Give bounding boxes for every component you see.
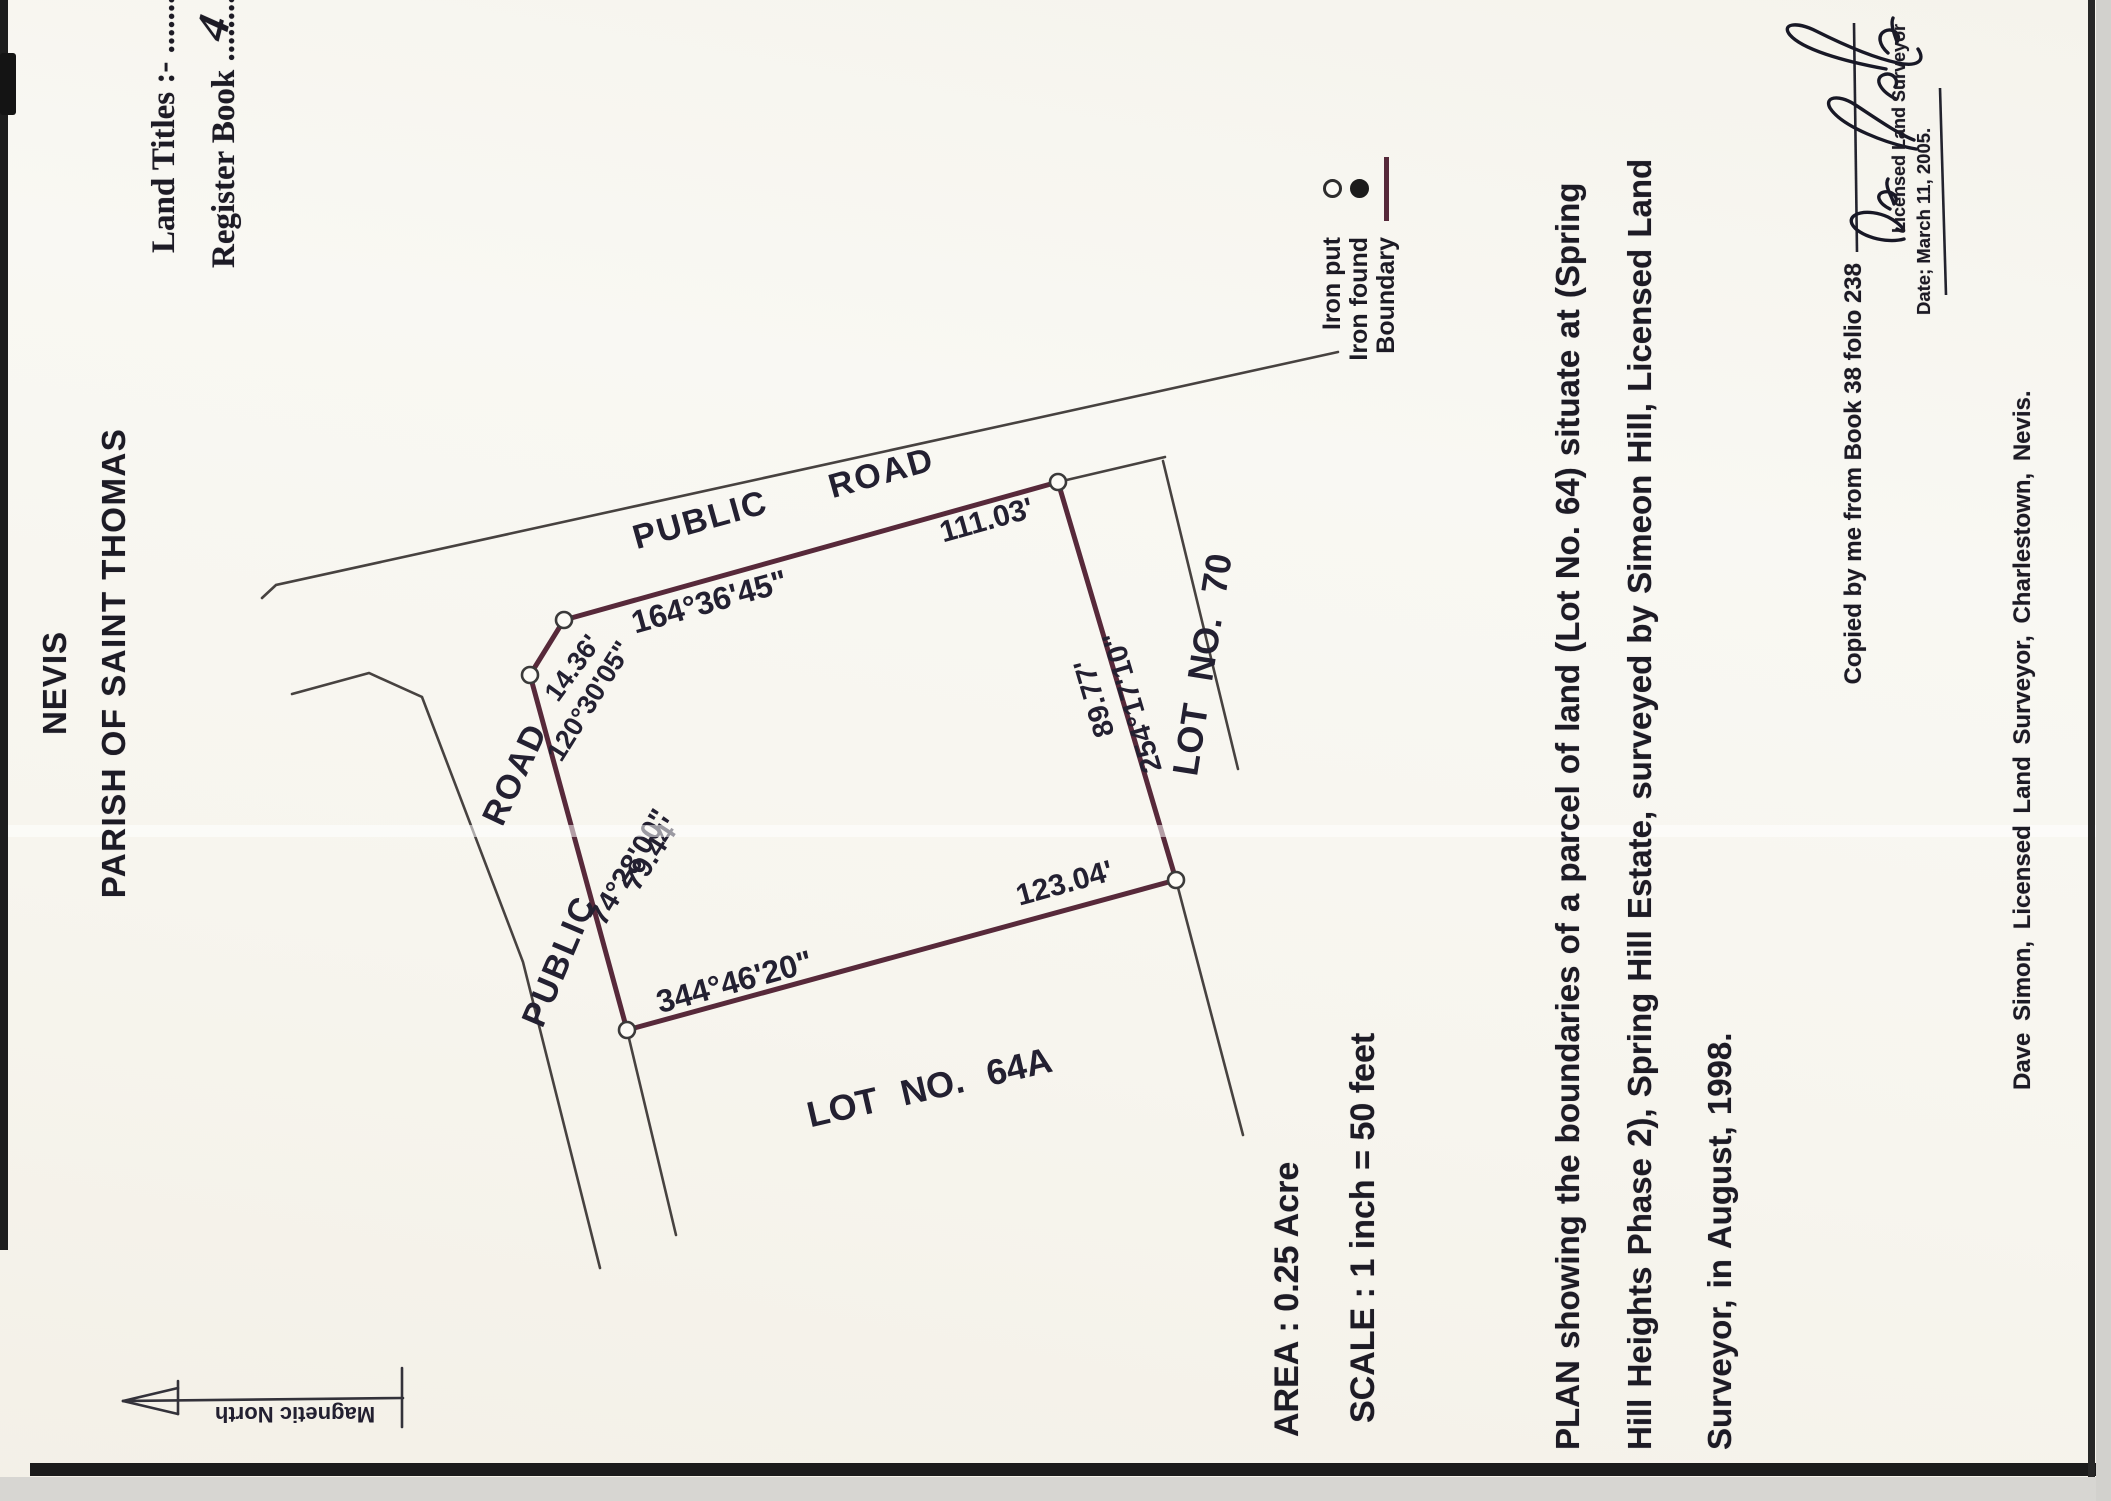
boundary-line-icon bbox=[1384, 141, 1389, 237]
iron-marker bbox=[522, 667, 538, 683]
parcel-boundary bbox=[530, 482, 1176, 1030]
bearing-south: 344°46'20" bbox=[652, 943, 816, 1020]
surveyor-footer: Dave Simon, Licensed Land Surveyor, Char… bbox=[2009, 390, 2037, 1090]
magnetic-north-label: Magnetic North bbox=[215, 1402, 375, 1427]
scanned-survey-plan: PUBLICROAD111.03'164°36'45"14.36'120°30'… bbox=[0, 0, 2111, 1501]
road-label-west-public: PUBLIC bbox=[515, 890, 604, 1032]
neighbor-lot-64a: LOT NO. 64A bbox=[803, 1039, 1056, 1135]
scanner-blob bbox=[0, 53, 16, 115]
iron-found-icon bbox=[1350, 141, 1369, 237]
road-label-west-road: ROAD bbox=[475, 717, 555, 831]
legend-row-iron-put: Iron put bbox=[1320, 141, 1345, 393]
legend-label-iron-found: Iron found bbox=[1345, 237, 1374, 361]
description-line-3: Surveyor, in August, 1998. bbox=[1701, 1033, 1739, 1450]
plan-labels: PUBLICROAD111.03'164°36'45"14.36'120°30'… bbox=[215, 440, 1240, 1427]
region-title: NEVIS bbox=[36, 631, 74, 735]
bearing-north: 164°36'45" bbox=[627, 563, 791, 641]
iron-marker bbox=[556, 612, 572, 628]
boundary-extension-northeast bbox=[1058, 457, 1165, 482]
scanner-margin-bottom bbox=[2096, 0, 2111, 1501]
legend-row-boundary: Boundary bbox=[1374, 141, 1399, 393]
parish-title: PARISH OF SAINT THOMAS bbox=[95, 428, 133, 899]
scanner-margin-left bbox=[0, 1477, 2111, 1501]
legend-label-boundary: Boundary bbox=[1372, 237, 1401, 354]
copied-note: Copied by me from Book 38 folio 238 bbox=[1840, 263, 1868, 684]
page-edge-bottom bbox=[2088, 0, 2095, 1501]
road-label-top-public: PUBLIC bbox=[629, 483, 773, 557]
date-line: Date; March 11, 2005. bbox=[1913, 128, 1935, 315]
scale-label: SCALE : 1 inch = 50 feet bbox=[1344, 1033, 1383, 1423]
iron-marker bbox=[1050, 474, 1066, 490]
date-underline bbox=[1940, 88, 1946, 295]
survey-document: PUBLICROAD111.03'164°36'45"14.36'120°30'… bbox=[0, 0, 2111, 1501]
neighbor-lot-70: LOT NO. 70 bbox=[1164, 551, 1240, 779]
area-label: AREA : 0.25 Acre bbox=[1268, 1162, 1307, 1437]
iron-put-icon bbox=[1323, 141, 1342, 237]
legend: Iron put Iron found Boundary bbox=[1320, 141, 1399, 393]
fold-streak bbox=[0, 825, 2111, 837]
iron-marker bbox=[619, 1022, 635, 1038]
public-road-top-far-edge bbox=[262, 352, 1338, 598]
legend-label-iron-put: Iron put bbox=[1318, 237, 1347, 330]
signature-line bbox=[1854, 23, 1857, 252]
boundary-extension-southeast bbox=[1176, 880, 1243, 1135]
licensed-title: Licensed Land Surveyor bbox=[1889, 24, 1910, 233]
scanner-band-top bbox=[0, 0, 8, 1250]
iron-marker bbox=[1168, 872, 1184, 888]
page-edge-left bbox=[30, 1463, 2102, 1476]
land-titles-label: Land Titles :- ........ bbox=[146, 0, 183, 253]
description-line-2: Hill Heights Phase 2), Spring Hill Estat… bbox=[1621, 159, 1659, 1450]
description-line-1: PLAN showing the boundaries of a parcel … bbox=[1549, 183, 1587, 1450]
plan-drawing: PUBLICROAD111.03'164°36'45"14.36'120°30'… bbox=[0, 0, 2111, 1501]
boundary-extension-southwest bbox=[627, 1030, 676, 1235]
dim-south-length: 123.04' bbox=[1013, 855, 1117, 913]
legend-row-iron-found: Iron found bbox=[1347, 141, 1372, 393]
road-label-top-road: ROAD bbox=[824, 440, 938, 506]
